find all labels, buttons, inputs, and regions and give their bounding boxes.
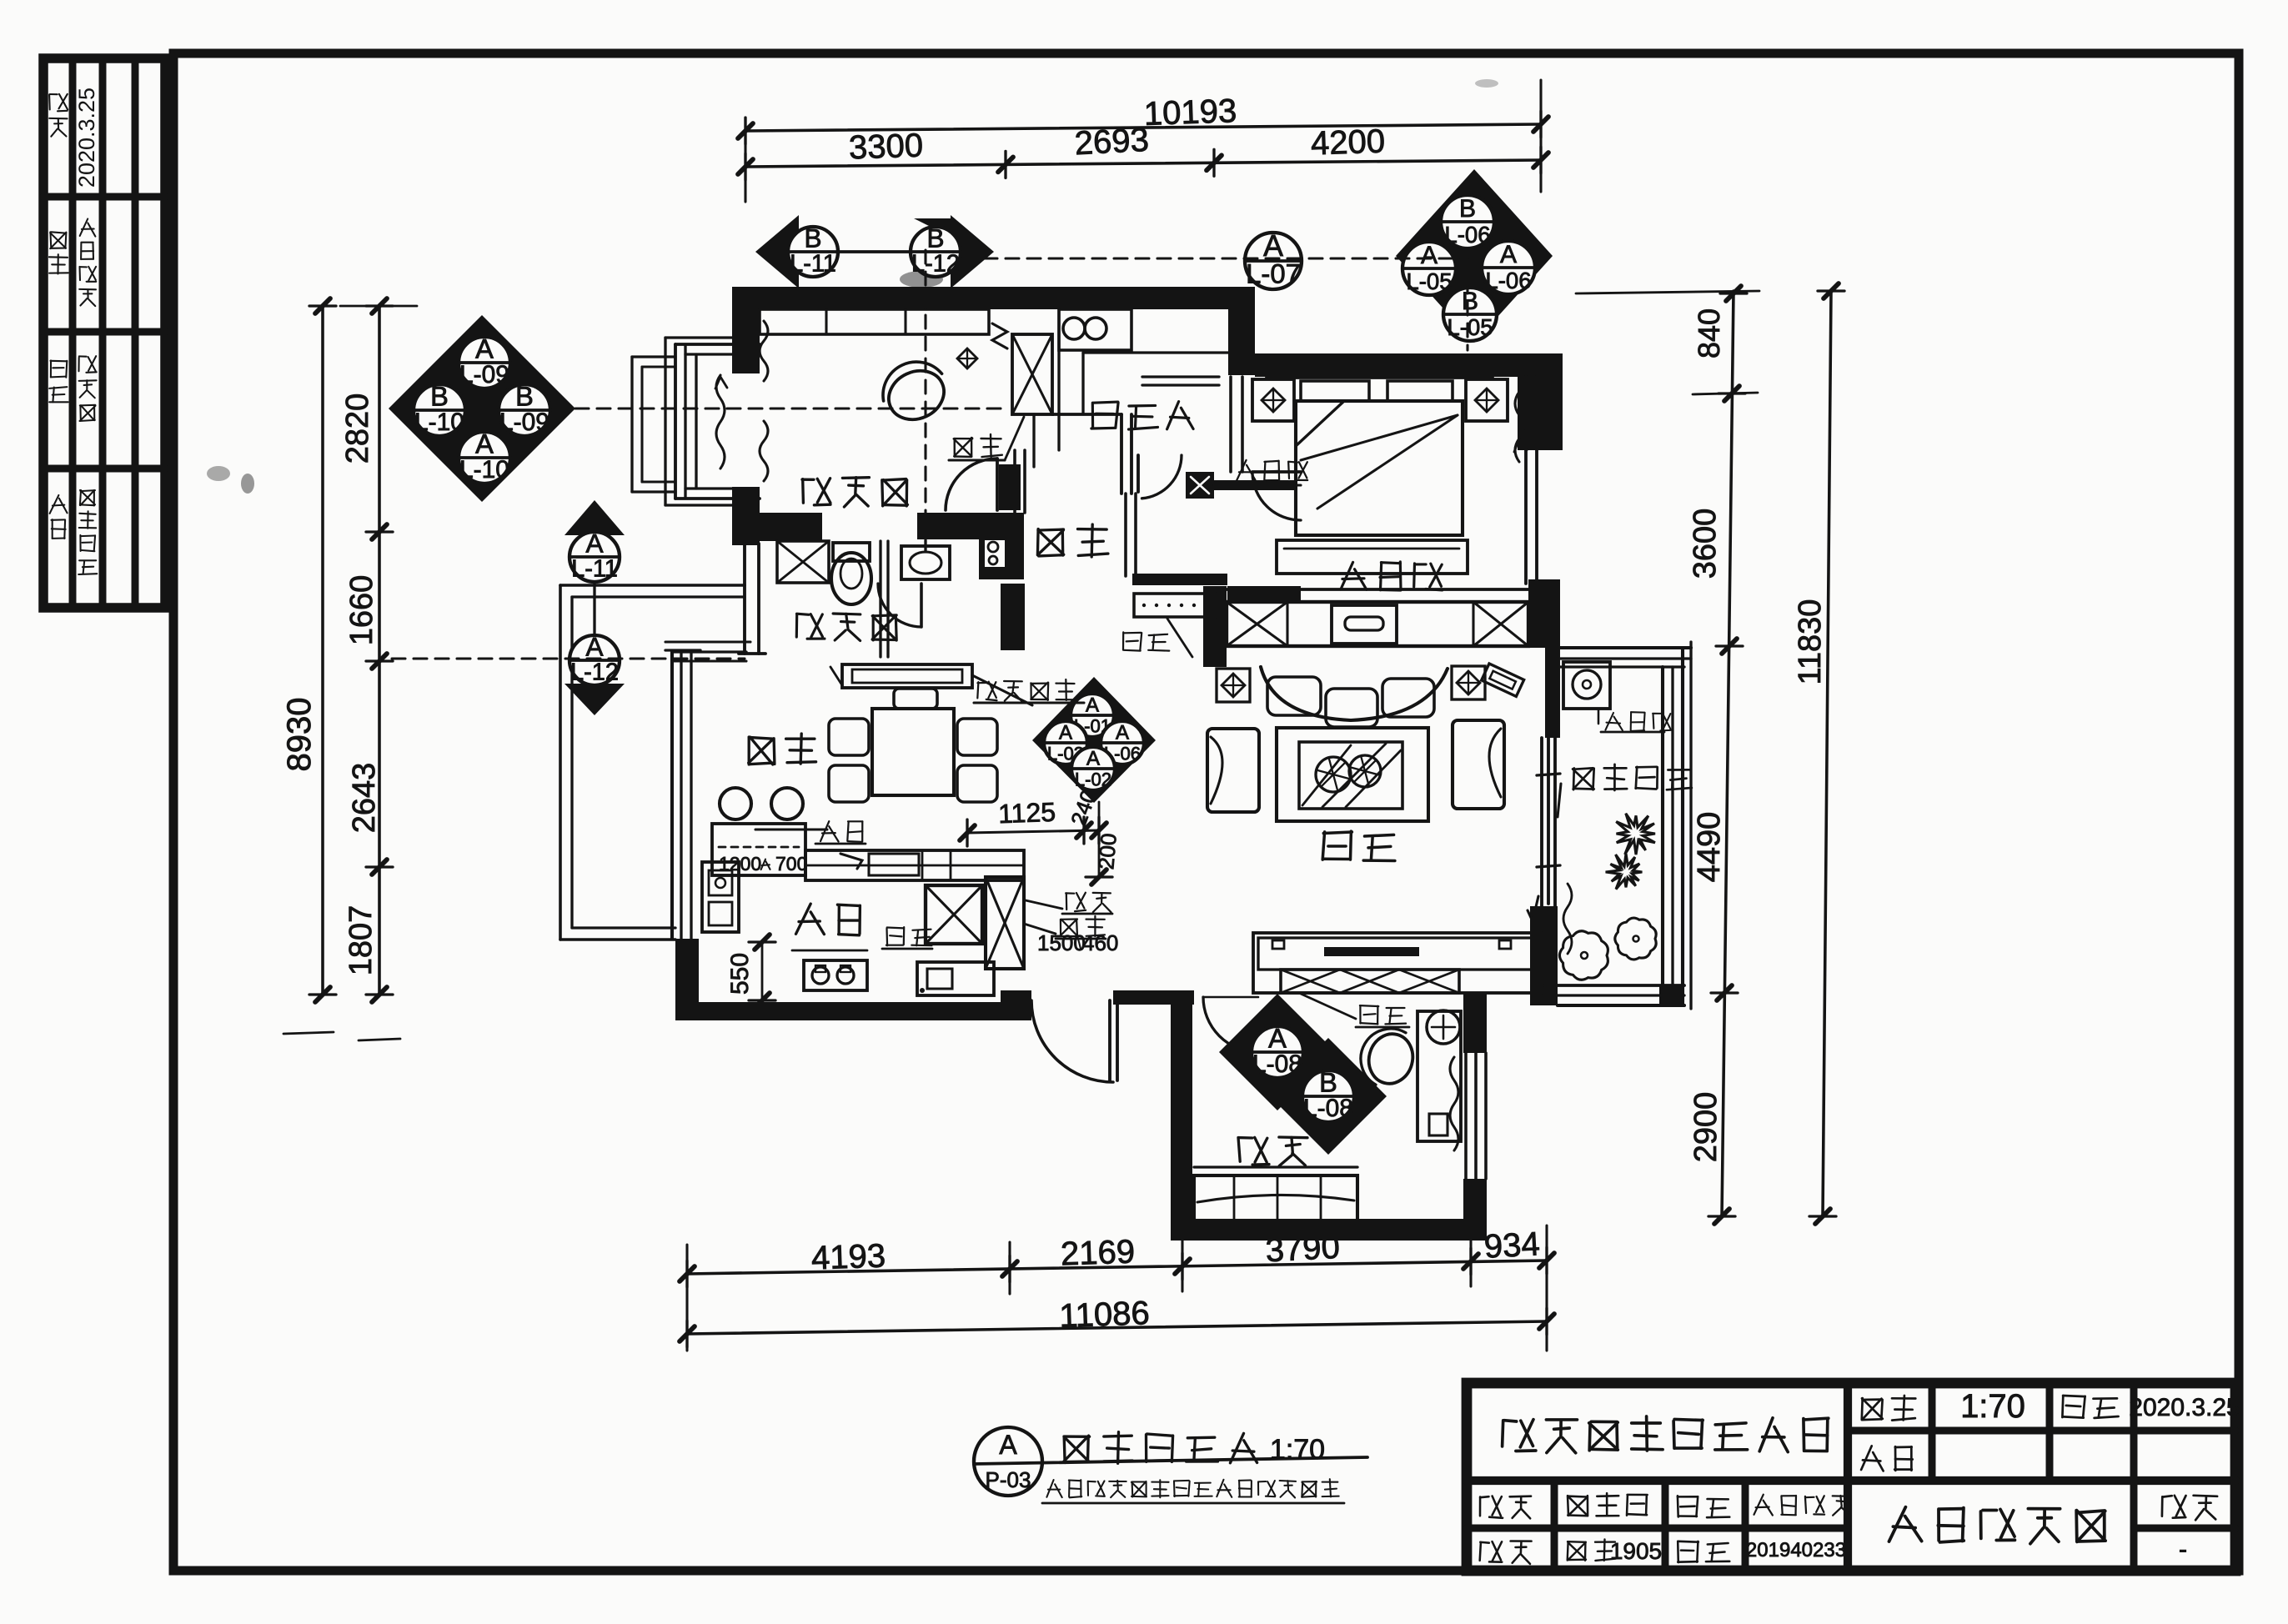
svg-text:10193: 10193 xyxy=(1143,93,1237,133)
svg-text:700: 700 xyxy=(775,853,807,875)
svg-text:L-10: L-10 xyxy=(414,409,464,436)
svg-text:A: A xyxy=(1268,1023,1287,1053)
svg-text:L-08: L-08 xyxy=(1303,1095,1353,1122)
svg-text:460: 460 xyxy=(1082,930,1118,955)
svg-text:200: 200 xyxy=(1093,832,1121,870)
svg-text:550: 550 xyxy=(726,953,754,995)
svg-text:1500: 1500 xyxy=(1037,930,1086,955)
svg-text:2820: 2820 xyxy=(340,393,375,464)
svg-text:-: - xyxy=(2179,1536,2187,1563)
svg-text:2643: 2643 xyxy=(347,763,382,834)
svg-text:L-09: L-09 xyxy=(499,409,549,436)
svg-text:4200: 4200 xyxy=(1310,123,1385,162)
svg-text:2169: 2169 xyxy=(1060,1233,1135,1272)
svg-text:A: A xyxy=(1059,721,1072,744)
svg-text:A: A xyxy=(475,429,494,459)
svg-text:L-06: L-06 xyxy=(1485,268,1531,293)
svg-text:1660: 1660 xyxy=(344,575,379,646)
svg-text:A: A xyxy=(1116,721,1129,744)
svg-text:P-03: P-03 xyxy=(986,1467,1031,1492)
svg-text:B: B xyxy=(430,381,449,411)
svg-text:934: 934 xyxy=(1483,1226,1541,1265)
svg-text:L-11: L-11 xyxy=(571,555,618,582)
svg-text:L-12: L-12 xyxy=(570,659,619,685)
svg-text:L-10: L-10 xyxy=(459,456,509,484)
svg-text:1807: 1807 xyxy=(344,905,379,976)
svg-text:2020.3.25: 2020.3.25 xyxy=(2129,1394,2240,1421)
svg-text:A: A xyxy=(475,333,494,363)
svg-text:A: A xyxy=(585,529,603,559)
svg-text:3600: 3600 xyxy=(1688,509,1723,579)
svg-text:B: B xyxy=(926,223,944,253)
svg-text:A: A xyxy=(1086,694,1099,716)
svg-text:B: B xyxy=(1319,1067,1337,1097)
svg-text:1:70: 1:70 xyxy=(1270,1434,1325,1466)
svg-text:L-05: L-05 xyxy=(1406,268,1452,294)
svg-text:L-09: L-09 xyxy=(459,361,509,388)
svg-text:B: B xyxy=(1462,288,1478,315)
svg-text:A: A xyxy=(585,632,603,662)
svg-text:A: A xyxy=(1500,241,1517,268)
svg-text:1:70: 1:70 xyxy=(1960,1388,2025,1425)
svg-text:L-12: L-12 xyxy=(911,250,960,277)
svg-text:2020.3.25: 2020.3.25 xyxy=(74,88,99,188)
svg-text:2693: 2693 xyxy=(1074,122,1150,163)
svg-text:1125: 1125 xyxy=(998,797,1056,829)
svg-text:L-06: L-06 xyxy=(1444,222,1490,248)
svg-text:1200: 1200 xyxy=(719,853,761,875)
svg-text:A: A xyxy=(1421,242,1438,269)
svg-text:L-11: L-11 xyxy=(790,250,836,277)
svg-text:2900: 2900 xyxy=(1688,1092,1724,1163)
svg-text:L-05: L-05 xyxy=(1447,314,1493,340)
svg-text:A: A xyxy=(999,1430,1017,1460)
svg-text:B: B xyxy=(804,223,821,253)
svg-text:8930: 8930 xyxy=(281,698,318,772)
svg-text:B: B xyxy=(515,381,534,411)
svg-text:4490: 4490 xyxy=(1692,812,1727,883)
svg-text:3300: 3300 xyxy=(848,127,923,166)
svg-text:B: B xyxy=(1459,195,1476,223)
svg-text:11086: 11086 xyxy=(1059,1295,1151,1335)
svg-text:A: A xyxy=(1086,747,1100,769)
svg-text:4193: 4193 xyxy=(810,1237,886,1276)
svg-text:201940233: 201940233 xyxy=(1746,1539,1846,1561)
svg-text:1905: 1905 xyxy=(1610,1538,1662,1564)
svg-text:11830: 11830 xyxy=(1793,599,1828,685)
svg-text:L-07: L-07 xyxy=(1246,258,1301,289)
svg-text:L-02: L-02 xyxy=(1075,769,1111,789)
svg-text:840: 840 xyxy=(1692,308,1726,358)
